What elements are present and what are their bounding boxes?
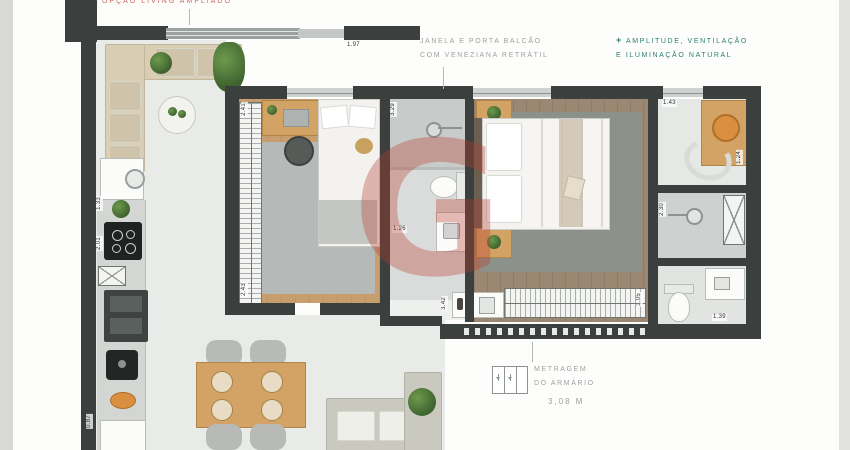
dimension-label: 0.87: [86, 414, 93, 429]
washing-machine: [100, 158, 144, 200]
watermark-letter: G: [352, 118, 504, 303]
wall: [551, 86, 663, 99]
wall: [648, 99, 658, 338]
dimension-label: 3.05: [636, 292, 643, 307]
wall: [65, 0, 97, 42]
wall: [353, 86, 423, 99]
dimension-label: 1.97: [346, 42, 361, 49]
bedroom1-chair: [284, 136, 314, 166]
floor-plan-image: OPÇÃO LIVING AMPLIADO: [0, 0, 850, 450]
bedroom1-desk: [262, 100, 326, 136]
cooktop: [104, 222, 142, 260]
dining-table: [196, 362, 306, 428]
benefit-note-line1: AMPLITUDE, VENTILAÇÃO: [626, 36, 748, 47]
closet-note-line1: METRAGEM: [534, 364, 587, 375]
wall: [344, 26, 420, 40]
master-low-window: [464, 328, 648, 335]
balcony-rail: [298, 29, 346, 38]
shower2-arm: [668, 214, 688, 216]
kitchen-plant: [112, 200, 130, 218]
window-note-line1: JANELA E PORTA BALCÃO: [420, 36, 542, 47]
dimension-label: 1.33: [96, 196, 103, 211]
window-note-leader-line: [443, 67, 444, 89]
plus-icon: +: [616, 35, 623, 46]
wardrobe-icon: [492, 366, 528, 394]
dimension-label: 1.39: [712, 314, 727, 321]
master-wardrobe: [504, 288, 646, 318]
dining-chair-4: [250, 424, 286, 450]
bottom-sofa-plant: [408, 388, 436, 416]
linen-cabinet: [723, 195, 745, 245]
wc-counter: [705, 268, 745, 300]
fruit-bowl: [110, 392, 136, 409]
living-sofa-left: [105, 44, 145, 172]
living-plant-small: [150, 52, 172, 74]
wall: [746, 86, 761, 338]
wall: [81, 40, 96, 450]
dimension-label: 1.43: [662, 100, 677, 107]
office-window: [663, 88, 703, 97]
bedroom1-wardrobe: [239, 102, 262, 304]
wall: [658, 185, 746, 193]
dimension-label: 1.24: [736, 150, 743, 165]
wall: [658, 258, 746, 266]
partial-top-label: OPÇÃO LIVING AMPLIADO: [102, 0, 232, 7]
closet-leader-line: [532, 342, 533, 362]
master-window: [473, 88, 551, 97]
living-round-table: [158, 96, 196, 134]
dining-chair-3: [206, 424, 242, 450]
wall: [225, 86, 287, 99]
left-margin-band: [0, 0, 13, 450]
fridge: [100, 420, 146, 450]
living-plant-large: [213, 42, 245, 92]
kitchen-sink: [106, 350, 138, 380]
bedroom1-window: [287, 88, 353, 97]
office-stool: [712, 114, 740, 142]
service-hatch: [98, 266, 126, 286]
dimension-label: 2.01: [96, 236, 103, 251]
wall: [96, 26, 168, 40]
top-label-leader-line: [189, 9, 190, 25]
window-note-line2: COM VENEZIANA RETRÁTIL: [420, 50, 549, 61]
wc-toilet: [668, 292, 690, 322]
dimension-label: 2.30: [659, 202, 666, 217]
shower2-head: [686, 208, 703, 225]
closet-measure-value: 3,08 M: [548, 396, 584, 407]
wall: [423, 86, 473, 99]
oven-tower: [104, 290, 148, 342]
benefit-note-line2: E ILUMINAÇÃO NATURAL: [616, 50, 732, 61]
wall: [225, 303, 295, 315]
dimension-label: 2.41: [241, 102, 248, 117]
closet-note-line2: DO ARMÁRIO: [534, 378, 595, 389]
balcony-sliding-door: [166, 28, 300, 39]
wall: [225, 99, 239, 315]
right-margin-band: [839, 0, 850, 450]
dimension-label: 2.43: [241, 282, 248, 297]
